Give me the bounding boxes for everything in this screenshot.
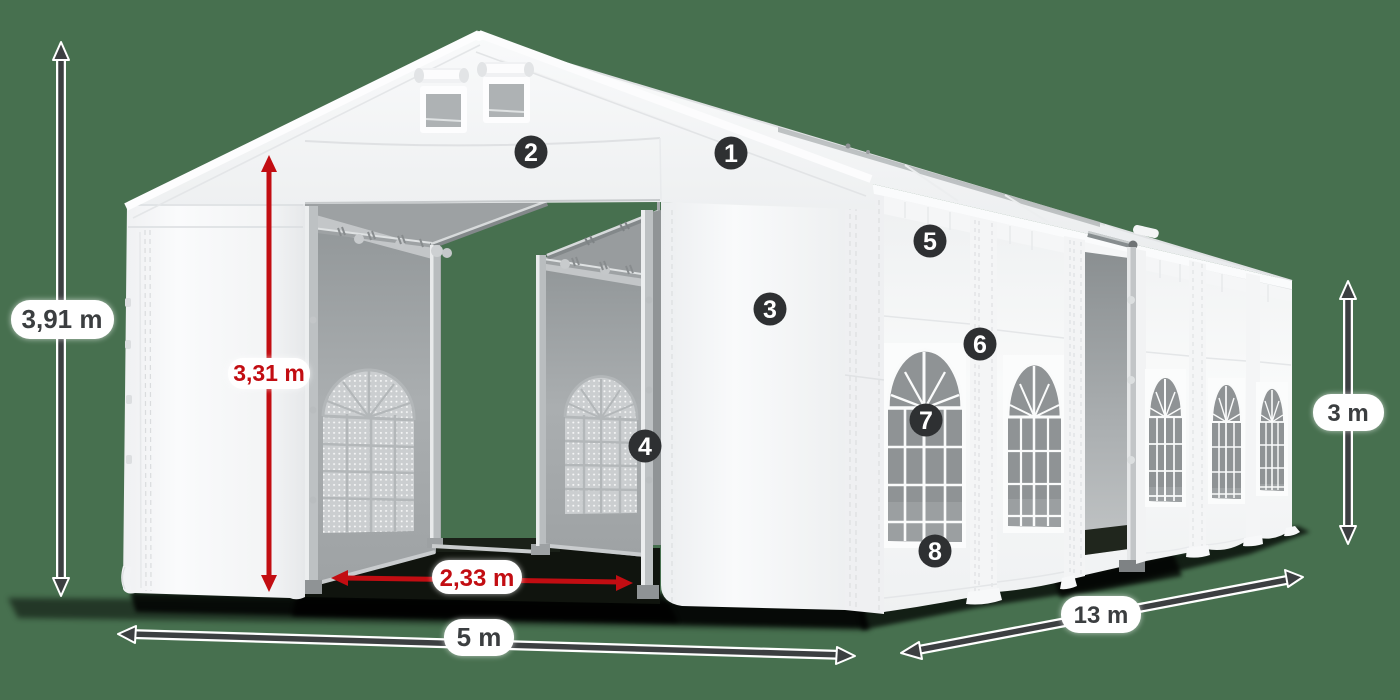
svg-text:3: 3 — [763, 296, 777, 324]
svg-text:3 m: 3 m — [1327, 400, 1368, 427]
svg-text:8: 8 — [928, 538, 942, 566]
svg-text:2: 2 — [524, 139, 538, 167]
svg-text:4: 4 — [638, 433, 652, 461]
svg-text:1: 1 — [724, 140, 738, 168]
svg-text:6: 6 — [973, 331, 987, 359]
svg-text:5: 5 — [923, 228, 937, 256]
svg-text:3,91 m: 3,91 m — [22, 304, 103, 334]
svg-text:3,31 m: 3,31 m — [233, 360, 305, 386]
svg-text:2,33 m: 2,33 m — [440, 565, 515, 592]
svg-text:5 m: 5 m — [457, 622, 502, 652]
svg-text:7: 7 — [919, 407, 933, 435]
svg-text:13 m: 13 m — [1074, 602, 1129, 629]
